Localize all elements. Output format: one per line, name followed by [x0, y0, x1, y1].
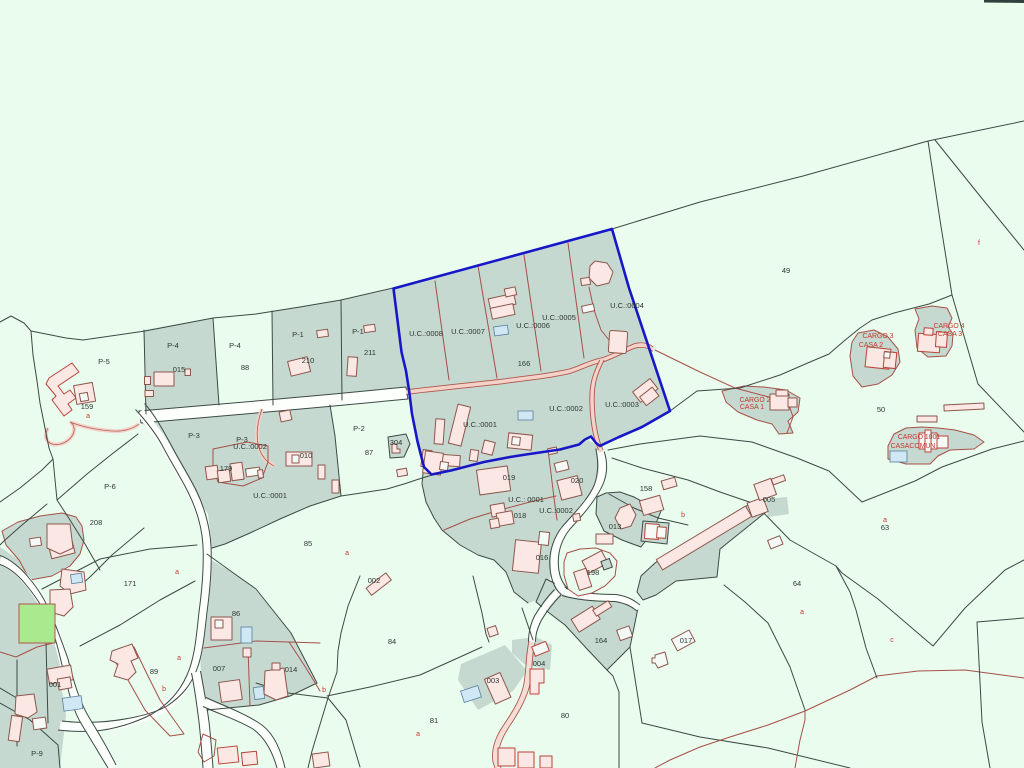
svg-text:U.C.: 0001: U.C.: 0001	[508, 495, 544, 504]
svg-text:CASA 3: CASA 3	[938, 331, 962, 338]
svg-text:015: 015	[173, 365, 186, 374]
svg-text:007: 007	[213, 664, 226, 673]
svg-text:020: 020	[571, 476, 584, 485]
svg-text:a: a	[86, 413, 90, 420]
svg-text:CARGO 1001: CARGO 1001	[898, 434, 941, 441]
svg-text:016: 016	[536, 553, 549, 562]
svg-text:P-4: P-4	[167, 341, 179, 350]
svg-text:64: 64	[793, 579, 801, 588]
svg-text:P-1: P-1	[352, 327, 364, 336]
svg-text:019: 019	[503, 473, 516, 482]
svg-text:P-5: P-5	[98, 357, 110, 366]
svg-text:49: 49	[782, 266, 790, 275]
svg-text:U.C.:0002: U.C.:0002	[549, 404, 583, 413]
svg-text:P-9: P-9	[31, 749, 43, 758]
svg-text:U.C.:0001: U.C.:0001	[253, 491, 287, 500]
svg-text:86: 86	[232, 609, 240, 618]
svg-text:85: 85	[304, 539, 312, 548]
svg-text:P-6: P-6	[104, 482, 116, 491]
svg-text:210: 210	[302, 356, 315, 365]
svg-text:013: 013	[609, 522, 622, 531]
svg-text:CARGO 2: CARGO 2	[739, 397, 770, 404]
svg-text:b: b	[322, 687, 326, 694]
svg-text:017: 017	[680, 636, 693, 645]
svg-text:U.C.:0007: U.C.:0007	[451, 327, 485, 336]
svg-text:U.C.:0001: U.C.:0001	[463, 420, 497, 429]
svg-text:179: 179	[220, 464, 233, 473]
svg-text:198: 198	[587, 568, 600, 577]
svg-text:164: 164	[595, 636, 608, 645]
svg-text:CASA 2: CASA 2	[859, 342, 883, 349]
svg-text:158: 158	[640, 484, 653, 493]
svg-text:CASACOMUN: CASACOMUN	[891, 443, 936, 450]
svg-text:b: b	[681, 512, 685, 519]
svg-text:U.C.:0006: U.C.:0006	[516, 321, 550, 330]
svg-text:a: a	[800, 609, 804, 616]
svg-text:005: 005	[763, 495, 776, 504]
svg-text:159: 159	[81, 402, 94, 411]
svg-text:166: 166	[518, 359, 531, 368]
svg-text:f: f	[978, 240, 980, 247]
svg-text:CASA 1: CASA 1	[740, 404, 764, 411]
svg-text:c: c	[890, 637, 894, 644]
svg-text:P-2: P-2	[353, 424, 365, 433]
svg-text:211: 211	[364, 348, 376, 357]
svg-text:002: 002	[368, 576, 381, 585]
svg-text:a: a	[883, 517, 887, 524]
svg-text:CARGO 4: CARGO 4	[933, 323, 964, 330]
svg-text:a: a	[175, 569, 179, 576]
svg-text:003: 003	[487, 676, 500, 685]
svg-text:80: 80	[561, 711, 569, 720]
svg-text:b: b	[162, 686, 166, 693]
svg-text:63: 63	[881, 523, 889, 532]
svg-text:89: 89	[150, 667, 158, 676]
svg-text:U.C.:0008: U.C.:0008	[409, 329, 443, 338]
svg-text:88: 88	[241, 363, 249, 372]
svg-text:P-4: P-4	[229, 341, 241, 350]
svg-text:a: a	[177, 655, 181, 662]
svg-text:018: 018	[514, 511, 527, 520]
svg-text:a: a	[416, 731, 420, 738]
svg-text:004: 004	[533, 659, 546, 668]
svg-text:014: 014	[285, 665, 298, 674]
svg-text:CARGO 3: CARGO 3	[862, 333, 893, 340]
svg-text:U.C.:0002: U.C.:0002	[233, 442, 267, 451]
svg-text:171: 171	[124, 579, 137, 588]
svg-text:P-1: P-1	[292, 330, 304, 339]
svg-text:84: 84	[388, 637, 396, 646]
svg-text:a: a	[345, 550, 349, 557]
svg-text:U.C.:0004: U.C.:0004	[610, 301, 644, 310]
svg-text:010: 010	[300, 451, 313, 460]
svg-text:U.C.:0005: U.C.:0005	[542, 313, 576, 322]
svg-text:87: 87	[365, 448, 373, 457]
svg-text:001: 001	[49, 680, 62, 689]
svg-text:P-3: P-3	[188, 431, 200, 440]
svg-text:U.C.:0002: U.C.:0002	[539, 506, 573, 515]
svg-text:208: 208	[90, 518, 103, 527]
svg-text:50: 50	[877, 405, 885, 414]
svg-text:U.C.:0003: U.C.:0003	[605, 400, 639, 409]
svg-text:304: 304	[390, 438, 403, 447]
svg-text:81: 81	[430, 716, 438, 725]
